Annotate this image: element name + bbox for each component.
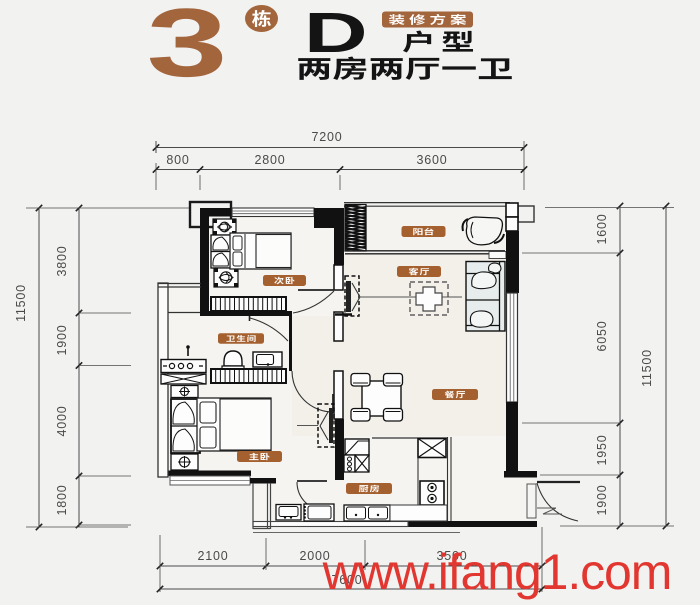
svg-text:4000: 4000 <box>55 405 69 436</box>
svg-text:11500: 11500 <box>14 284 28 322</box>
svg-text:3800: 3800 <box>55 245 69 276</box>
svg-text:3: 3 <box>147 0 228 97</box>
svg-text:3600: 3600 <box>416 153 447 167</box>
svg-text:1600: 1600 <box>595 213 609 244</box>
svg-text:6050: 6050 <box>595 320 609 351</box>
svg-text:1950: 1950 <box>595 434 609 465</box>
svg-text:2100: 2100 <box>197 549 228 563</box>
svg-text:1900: 1900 <box>55 324 69 355</box>
svg-text:1800: 1800 <box>55 484 69 515</box>
svg-text:D: D <box>304 1 368 65</box>
svg-text:800: 800 <box>166 153 189 167</box>
svg-text:7200: 7200 <box>311 130 342 144</box>
svg-text:2800: 2800 <box>254 153 285 167</box>
svg-text:www.ifang1.com: www.ifang1.com <box>322 544 672 600</box>
svg-text:1900: 1900 <box>595 484 609 515</box>
svg-text:11500: 11500 <box>640 349 654 387</box>
